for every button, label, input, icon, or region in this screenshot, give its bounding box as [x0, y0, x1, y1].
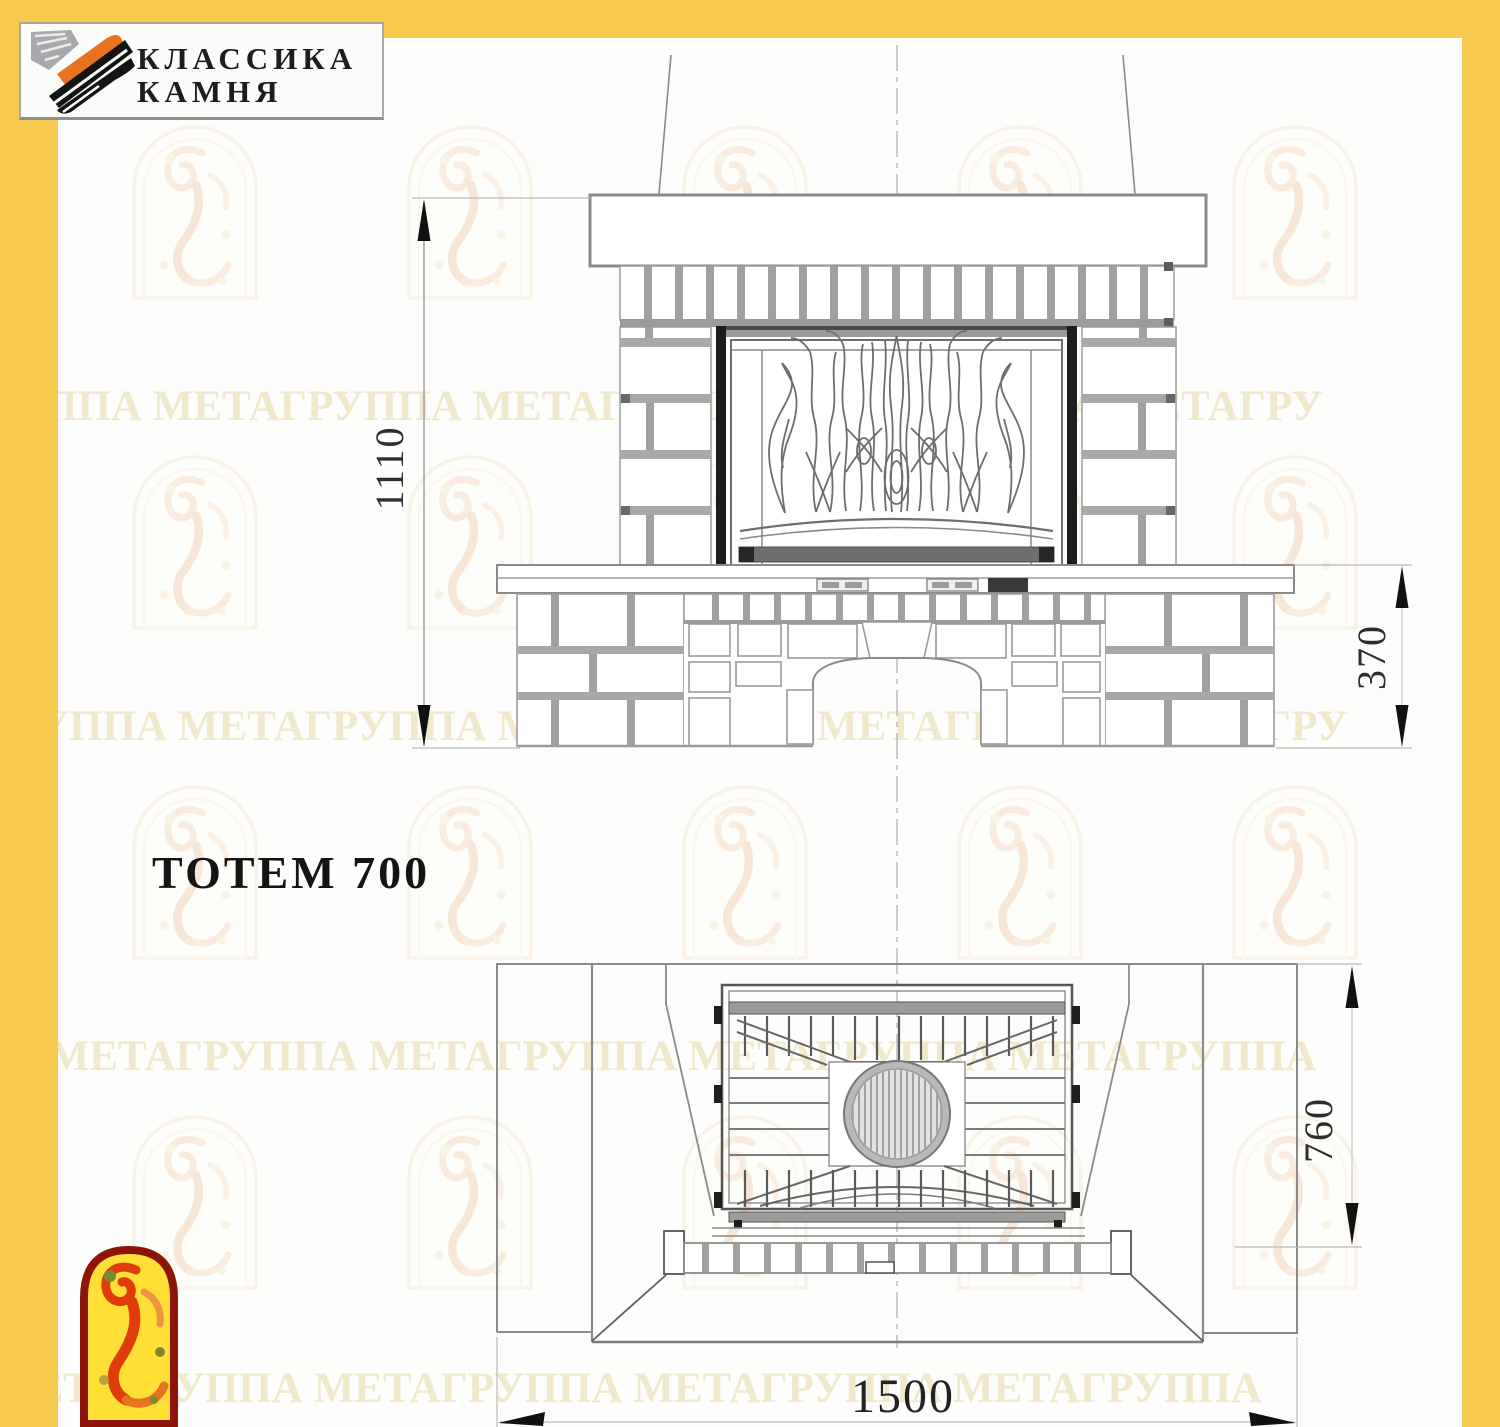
- svg-text:1110: 1110: [367, 425, 412, 510]
- svg-text:КЛАССИКА: КЛАССИКА: [137, 41, 357, 76]
- svg-text:ППА МЕТАГРУППА МЕТАГРУППА МЕТА: ППА МЕТАГРУППА МЕТАГРУППА МЕТАГРУППА МЕТ…: [0, 1033, 1317, 1080]
- svg-text:1500: 1500: [851, 1370, 955, 1423]
- svg-text:760: 760: [1296, 1097, 1341, 1163]
- svg-text:ТОТЕМ 700: ТОТЕМ 700: [152, 847, 430, 898]
- svg-text:КАМНЯ: КАМНЯ: [137, 74, 283, 109]
- svg-text:370: 370: [1349, 624, 1394, 690]
- svg-text:ЩА МЕТАГРУППА МЕТАГРУППА МЕТАГ: ЩА МЕТАГРУППА МЕТАГРУППА МЕТАГРУППА МЕТА…: [0, 1365, 1262, 1412]
